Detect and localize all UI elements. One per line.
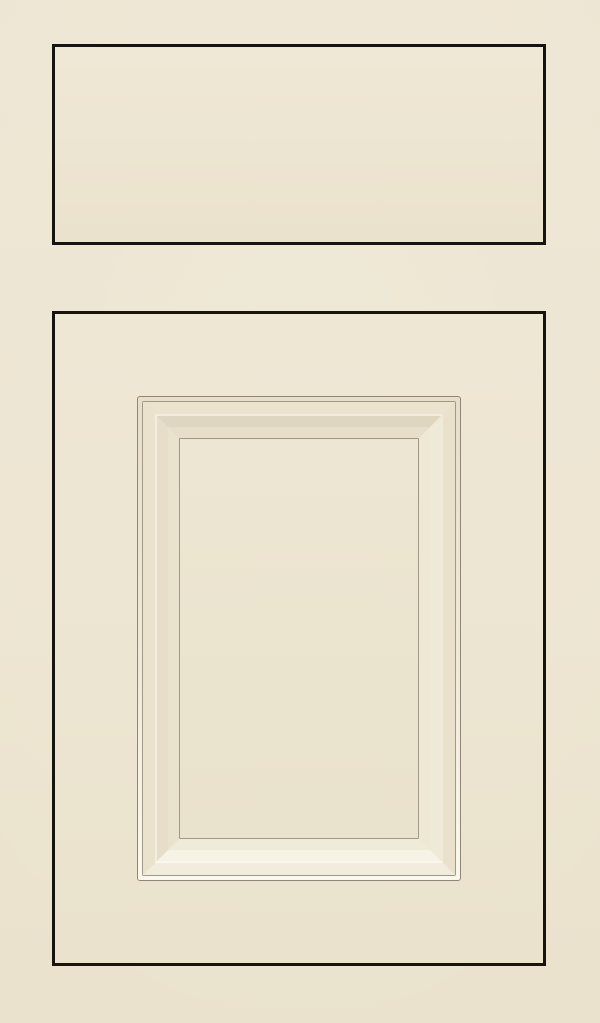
cabinet-sample-image [0, 0, 600, 1023]
applied-molding-inner-line [142, 401, 456, 876]
drawer-face [55, 47, 543, 242]
center-panel [179, 438, 419, 839]
cabinet-door [52, 311, 546, 966]
applied-molding-outer-line [137, 396, 461, 881]
drawer-front [52, 44, 546, 245]
